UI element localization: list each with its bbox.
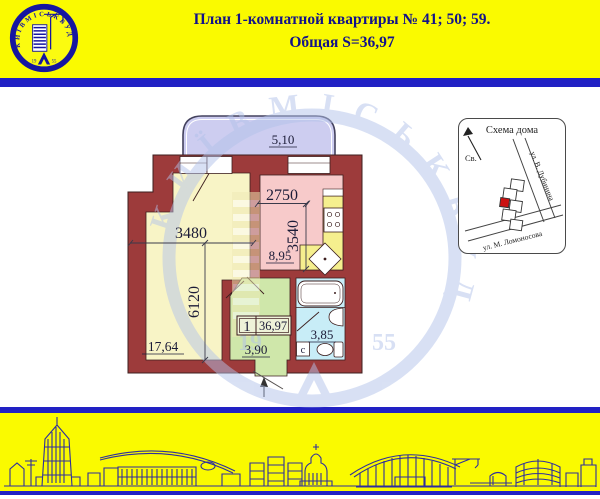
washer-label: с (301, 345, 306, 356)
balcony-area-label: 5,10 (272, 132, 295, 147)
header-band: План 1-комнатной квартиры № 41; 50; 59. … (0, 0, 600, 78)
dimension-lines (128, 201, 310, 364)
skyline-cylinder-building (516, 459, 560, 487)
header-titles: План 1-комнатной квартиры № 41; 50; 59. … (92, 11, 592, 52)
bath-area-label: 3,85 (311, 327, 334, 342)
kitchen-width-label: 2750 (266, 187, 298, 204)
company-logo: КИЇВМІСЬКБУД 19 55 (8, 2, 80, 74)
total-area-label: 36,97 (259, 319, 287, 333)
kitchen-area-label: 8,95 (269, 248, 292, 263)
watermark-brand-arc-text: КИЇВМІСЬКБУД (142, 84, 484, 323)
washer-box (297, 342, 310, 356)
dim-ticks-kitchen-height (303, 201, 309, 272)
living-room (146, 173, 250, 360)
page-subtitle: Общая S=36,97 (92, 34, 592, 52)
balcony-inner-line (187, 120, 332, 163)
watermark-emblem-triangle (294, 362, 334, 402)
skyline-right-blocks (470, 459, 596, 487)
kitchen-shelf (323, 189, 343, 196)
living-area-label: 17,64 (148, 339, 179, 354)
north-arrow-icon (463, 127, 473, 136)
summary-box-outer (237, 316, 291, 335)
kitchen-door-leaf (247, 277, 264, 294)
scheme-map: Схема дома Св. ул. В. Дубинина ул. М. Ло… (459, 119, 564, 252)
entrance-door-leaf (253, 371, 283, 389)
kitchen (260, 175, 343, 270)
watermark-building (232, 192, 260, 337)
skyline-arena-roof (350, 455, 460, 487)
skyline-power-pole (25, 459, 37, 486)
skyline-stepped-towers (250, 457, 302, 486)
kitchen-sink (309, 243, 341, 275)
dim-ticks-living-height (202, 240, 208, 363)
logo-building-windows (34, 28, 46, 48)
summary-box: 1 36,97 (237, 316, 291, 335)
watermark-ring (169, 115, 455, 401)
living-window (180, 157, 207, 174)
balcony-door-leaf (193, 174, 209, 202)
page-bottom-line (0, 491, 600, 495)
kitchen-height-label: 3540 (285, 220, 302, 252)
skyline-mid-block (222, 474, 240, 486)
skyline-slab-ribs (122, 469, 192, 485)
building-footprint (497, 178, 529, 231)
bathtub-drain (334, 292, 336, 294)
entrance-arrow-icon (260, 377, 268, 387)
toilet-tank (334, 342, 343, 357)
skyline-arena-ribs (360, 455, 448, 487)
balcony-door-opening (207, 157, 232, 174)
hallway (230, 278, 290, 376)
skyline-blocks-left (88, 468, 118, 486)
skyline-tower-outline (42, 417, 72, 486)
skyline-tower-facade (43, 427, 71, 483)
skyline-small-house (10, 463, 24, 486)
skyline-dome-building (490, 473, 506, 487)
scheme-box: Схема дома Св. ул. В. Дубинина ул. М. Ло… (458, 118, 566, 254)
skyline-crane (452, 459, 480, 485)
bathroom (296, 278, 345, 360)
watermark-building-windows (233, 200, 259, 319)
highlighted-unit (500, 198, 510, 208)
page-title: План 1-комнатной квартиры № 41; 50; 59. (92, 11, 592, 29)
building-section (510, 219, 523, 231)
footer-band (0, 413, 600, 491)
watermark-year-right: 55 (372, 330, 396, 356)
logo-year-right: 55 (52, 60, 57, 65)
street-bottom-label: ул. М. Ломоносова (482, 229, 544, 252)
scheme-title: Схема дома (486, 125, 538, 136)
bathroom-door-leaf (297, 312, 319, 331)
city-skyline (0, 413, 600, 491)
watermark: КИЇВМІСЬКБУД 19 55 (142, 84, 484, 402)
skyline-church (300, 444, 332, 486)
bathtub (298, 281, 343, 306)
page: План 1-комнатной квартиры № 41; 50; 59. … (0, 0, 600, 499)
summary-box-inner (240, 319, 289, 333)
stove-burners (327, 212, 339, 226)
north-label: Св. (465, 153, 477, 163)
walls (128, 155, 362, 373)
street-diagonal-label: ул. В. Дубинина (528, 150, 556, 202)
toilet-bowl (317, 344, 333, 356)
watermark-year-left: 19 (238, 330, 262, 356)
logo-year-left: 19 (32, 60, 37, 65)
living-width-label: 3480 (175, 225, 207, 242)
dim-ticks-living-width (128, 240, 256, 246)
plan-labels: 5,10 2750 3540 8,95 3480 6120 17,64 3,90… (142, 132, 336, 357)
kitchen-sink-drain (324, 258, 327, 261)
hall-area-label: 3,90 (245, 342, 268, 357)
living-door-leaf (226, 281, 244, 298)
header-divider-bar (0, 78, 600, 87)
kitchen-window (288, 157, 330, 174)
rooms-count-label: 1 (243, 319, 251, 335)
balcony (183, 116, 335, 162)
dim-ticks-kitchen-width (255, 201, 310, 208)
bathtub-inner (301, 284, 340, 303)
kitchen-counter (300, 196, 343, 270)
living-height-label: 6120 (186, 286, 203, 318)
stove (324, 208, 343, 232)
washbasin (329, 308, 343, 326)
